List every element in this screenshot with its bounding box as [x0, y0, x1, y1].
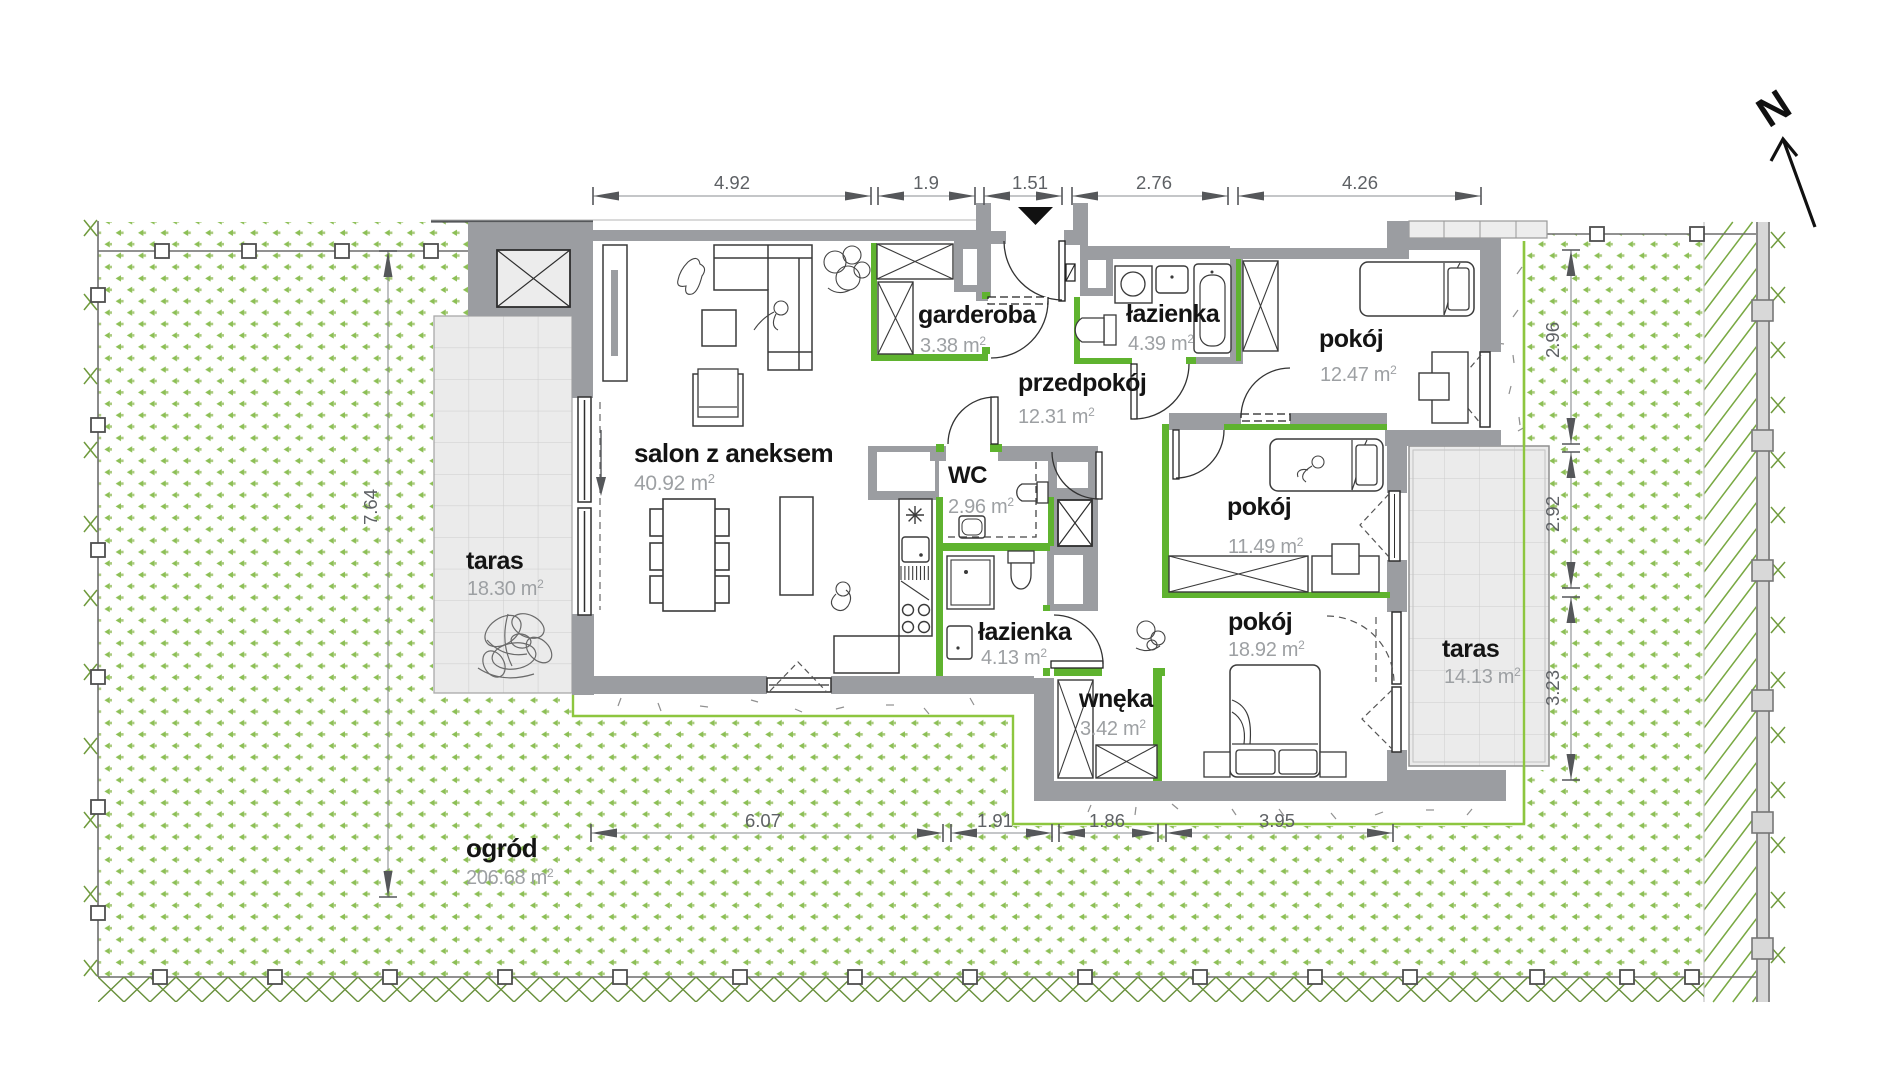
svg-text:salon z aneksem: salon z aneksem	[634, 438, 833, 468]
svg-text:6.07: 6.07	[745, 810, 781, 831]
svg-text:4.26: 4.26	[1342, 172, 1378, 193]
svg-text:12.47 m2: 12.47 m2	[1320, 363, 1397, 386]
svg-text:2.92: 2.92	[1542, 496, 1563, 532]
svg-text:4.92: 4.92	[714, 172, 750, 193]
svg-text:1.9: 1.9	[913, 172, 939, 193]
svg-text:taras: taras	[466, 547, 523, 575]
svg-text:ogród: ogród	[466, 833, 537, 863]
svg-text:3.42 m2: 3.42 m2	[1080, 717, 1146, 740]
svg-text:pokój: pokój	[1227, 493, 1291, 521]
svg-text:wnęka: wnęka	[1078, 685, 1155, 713]
svg-text:2.96: 2.96	[1542, 322, 1563, 358]
svg-text:2.96 m2: 2.96 m2	[948, 495, 1014, 518]
svg-text:1.91: 1.91	[977, 810, 1013, 831]
svg-text:łazienka: łazienka	[1126, 300, 1221, 328]
svg-text:18.92 m2: 18.92 m2	[1228, 638, 1305, 661]
svg-text:pokój: pokój	[1319, 325, 1383, 353]
svg-text:WC: WC	[948, 462, 987, 489]
svg-text:3.95: 3.95	[1259, 810, 1295, 831]
svg-text:206.68 m2: 206.68 m2	[466, 866, 554, 889]
svg-text:1.86: 1.86	[1089, 810, 1125, 831]
svg-text:3.38 m2: 3.38 m2	[920, 334, 986, 357]
svg-text:4.39 m2: 4.39 m2	[1128, 332, 1194, 355]
svg-text:11.49 m2: 11.49 m2	[1228, 535, 1304, 558]
svg-text:garderoba: garderoba	[918, 301, 1037, 329]
svg-text:pokój: pokój	[1228, 608, 1292, 636]
svg-text:12.31 m2: 12.31 m2	[1018, 405, 1095, 428]
svg-text:4.13 m2: 4.13 m2	[981, 646, 1047, 669]
svg-text:7.64: 7.64	[360, 489, 381, 525]
svg-text:2.76: 2.76	[1136, 172, 1172, 193]
svg-text:18.30 m2: 18.30 m2	[467, 577, 544, 600]
svg-text:3.23: 3.23	[1542, 670, 1563, 706]
svg-text:taras: taras	[1442, 635, 1499, 663]
svg-text:40.92 m2: 40.92 m2	[634, 471, 715, 495]
svg-text:przedpokój: przedpokój	[1018, 369, 1146, 397]
svg-text:14.13 m2: 14.13 m2	[1444, 665, 1521, 688]
svg-text:1.51: 1.51	[1012, 172, 1048, 193]
svg-text:łazienka: łazienka	[978, 618, 1073, 646]
